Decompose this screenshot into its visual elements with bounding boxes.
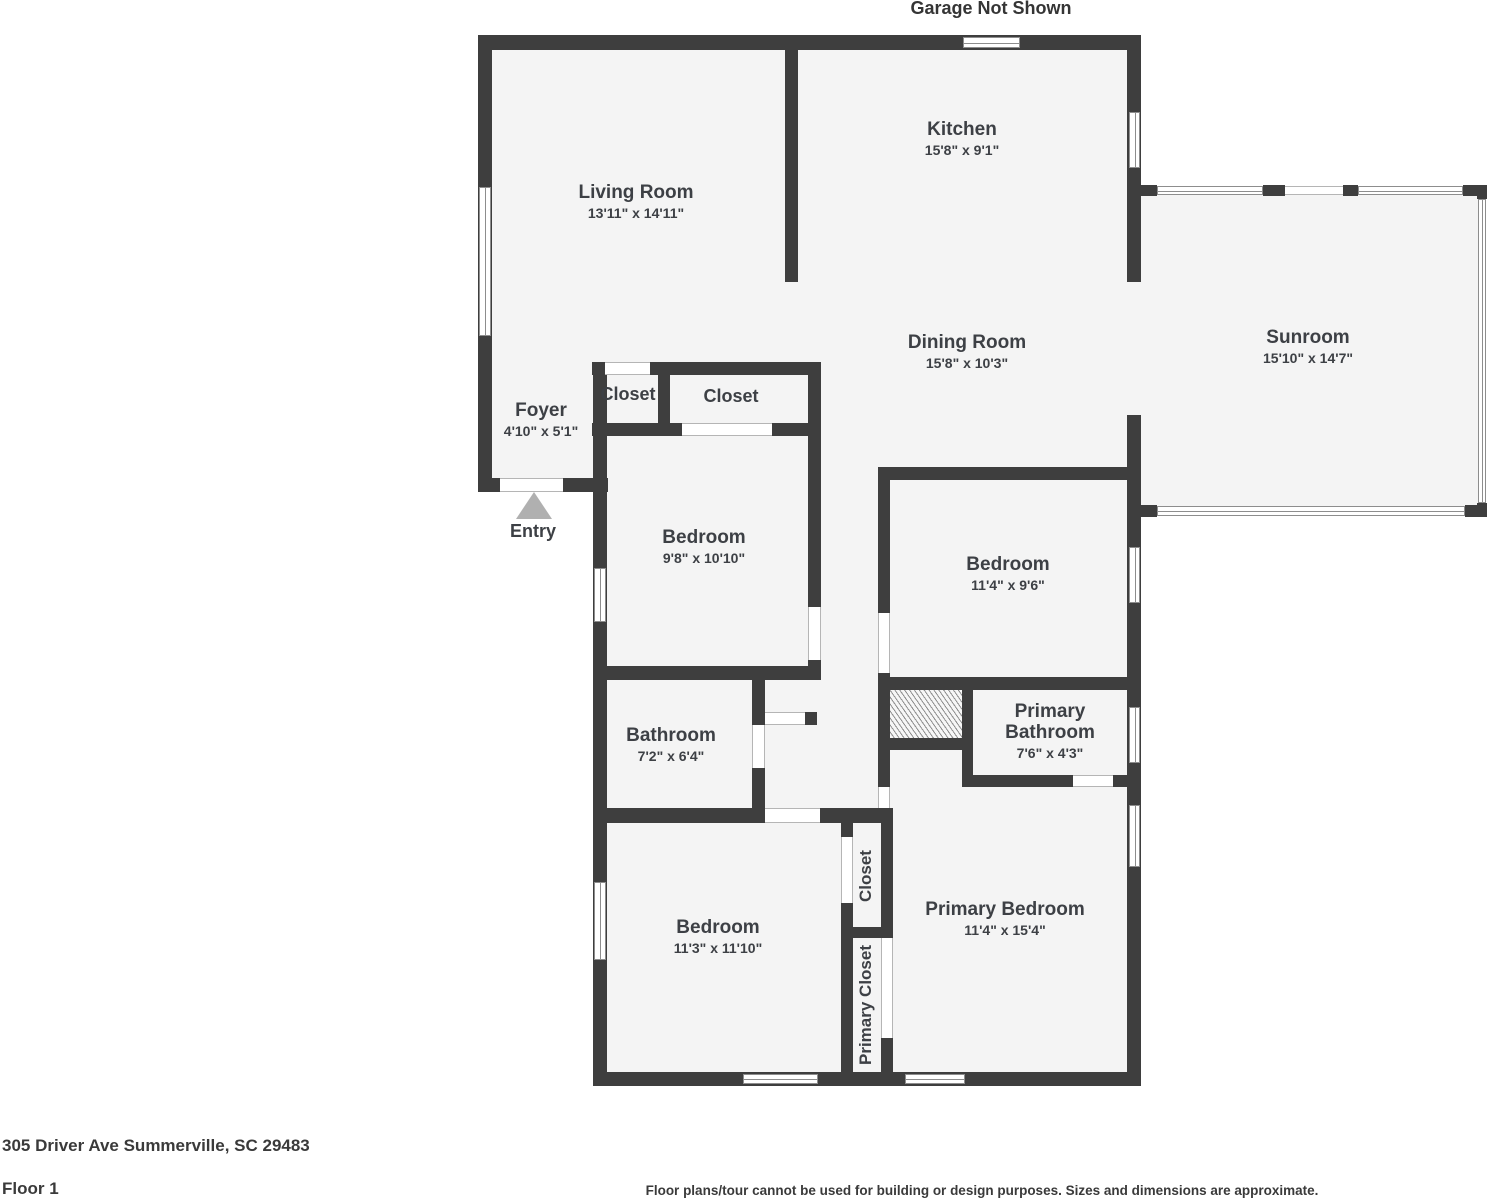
entry-arrow-icon bbox=[516, 492, 552, 519]
room-label-sunroom: Sunroom 15'10" x 14'7" bbox=[1263, 327, 1353, 368]
room-dims: 11'4" x 9'6" bbox=[966, 575, 1049, 595]
room-label-bedroom-middle: Bedroom 11'4" x 9'6" bbox=[966, 554, 1049, 595]
wall bbox=[752, 768, 765, 822]
window bbox=[1358, 186, 1463, 195]
wall bbox=[785, 42, 798, 282]
wall bbox=[478, 35, 1141, 50]
window bbox=[1157, 186, 1263, 195]
window bbox=[1129, 707, 1140, 763]
door-gap bbox=[841, 837, 853, 903]
room-label-bedroom-back: Bedroom 11'3" x 11'10" bbox=[674, 917, 762, 958]
window bbox=[594, 882, 606, 960]
room-name: Bedroom bbox=[662, 527, 745, 548]
shower-hatch bbox=[890, 690, 962, 738]
room-name: Sunroom bbox=[1263, 327, 1353, 348]
door-gap bbox=[808, 607, 821, 660]
room-dims: 7'6" x 4'3" bbox=[980, 743, 1120, 763]
room-name: Bedroom bbox=[966, 554, 1049, 575]
door-gap bbox=[605, 362, 650, 375]
window bbox=[479, 187, 491, 336]
floor-label: Floor 1 bbox=[2, 1179, 59, 1198]
room-label-bedroom-front: Bedroom 9'8" x 10'10" bbox=[662, 527, 745, 568]
room-dims: 9'8" x 10'10" bbox=[662, 548, 745, 568]
room-name: Dining Room bbox=[908, 332, 1026, 353]
room-dims: 7'2" x 6'4" bbox=[626, 746, 716, 766]
entry-label: Entry bbox=[510, 521, 556, 542]
wall bbox=[962, 775, 1141, 787]
window bbox=[1129, 112, 1140, 168]
door-gap bbox=[878, 613, 890, 673]
window bbox=[1129, 805, 1140, 867]
room-name: Bedroom bbox=[674, 917, 762, 938]
room-dims: 15'8" x 10'3" bbox=[908, 353, 1026, 373]
room-label-kitchen: Kitchen 15'8" x 9'1" bbox=[925, 119, 999, 160]
window bbox=[743, 1074, 818, 1084]
wall bbox=[962, 690, 973, 775]
room-dims: 15'10" x 14'7" bbox=[1263, 348, 1353, 368]
room-name: Primary Bedroom bbox=[925, 899, 1084, 920]
room-name: Bathroom bbox=[626, 725, 716, 746]
room-label-bathroom: Bathroom 7'2" x 6'4" bbox=[626, 725, 716, 766]
closet-b-label: Closet bbox=[703, 386, 758, 407]
window bbox=[594, 568, 606, 622]
wall bbox=[878, 677, 1141, 690]
wall bbox=[878, 467, 1141, 480]
wall bbox=[1343, 185, 1358, 196]
room-name: Primary Bathroom bbox=[980, 701, 1120, 743]
room-name: Kitchen bbox=[925, 119, 999, 140]
door-gap bbox=[765, 808, 820, 823]
wall bbox=[878, 738, 973, 750]
address: 305 Driver Ave Summerville, SC 29483 bbox=[2, 1136, 310, 1156]
door-gap bbox=[682, 423, 772, 436]
door-gap bbox=[1073, 775, 1113, 787]
window bbox=[1157, 506, 1465, 516]
window bbox=[905, 1074, 965, 1084]
room-dims: 13'11" x 14'11" bbox=[578, 203, 693, 223]
room-label-dining-room: Dining Room 15'8" x 10'3" bbox=[908, 332, 1026, 373]
door-gap bbox=[1285, 186, 1343, 195]
room-label-foyer: Foyer 4'10" x 5'1" bbox=[504, 400, 578, 441]
wall bbox=[593, 362, 607, 1086]
window bbox=[1478, 199, 1486, 503]
closet-a-label: Closet bbox=[600, 384, 655, 405]
garage-note: Garage Not Shown bbox=[910, 0, 1071, 19]
disclaimer: Floor plans/tour cannot be used for buil… bbox=[646, 1183, 1319, 1198]
wall bbox=[1463, 185, 1487, 196]
room-label-living-room: Living Room 13'11" x 14'11" bbox=[578, 182, 693, 223]
wall bbox=[593, 666, 815, 680]
room-name: Foyer bbox=[504, 400, 578, 421]
door-gap bbox=[765, 712, 805, 725]
closet-hall-label: Closet bbox=[856, 850, 876, 902]
room-dims: 11'4" x 15'4" bbox=[925, 920, 1084, 940]
wall bbox=[1477, 503, 1487, 517]
wall bbox=[1263, 185, 1285, 196]
wall bbox=[878, 690, 890, 787]
door-gap bbox=[752, 725, 765, 768]
room-opening bbox=[1127, 282, 1141, 415]
window bbox=[963, 37, 1020, 48]
door-gap bbox=[881, 938, 893, 1038]
room-label-primary-bathroom: Primary Bathroom 7'6" x 4'3" bbox=[980, 701, 1120, 763]
room-name: Living Room bbox=[578, 182, 693, 203]
room-dims: 4'10" x 5'1" bbox=[504, 421, 578, 441]
door-gap bbox=[878, 787, 890, 808]
door-gap bbox=[500, 478, 563, 492]
room-dims: 11'3" x 11'10" bbox=[674, 938, 762, 958]
room-label-primary-bedroom: Primary Bedroom 11'4" x 15'4" bbox=[925, 899, 1084, 940]
room-dims: 15'8" x 9'1" bbox=[925, 140, 999, 160]
primary-closet-label: Primary Closet bbox=[856, 945, 876, 1065]
wall bbox=[593, 1072, 1141, 1086]
floor-plan: Garage Not Shown Living Room 13'11" x 14… bbox=[0, 0, 1488, 1198]
window bbox=[1129, 547, 1140, 603]
